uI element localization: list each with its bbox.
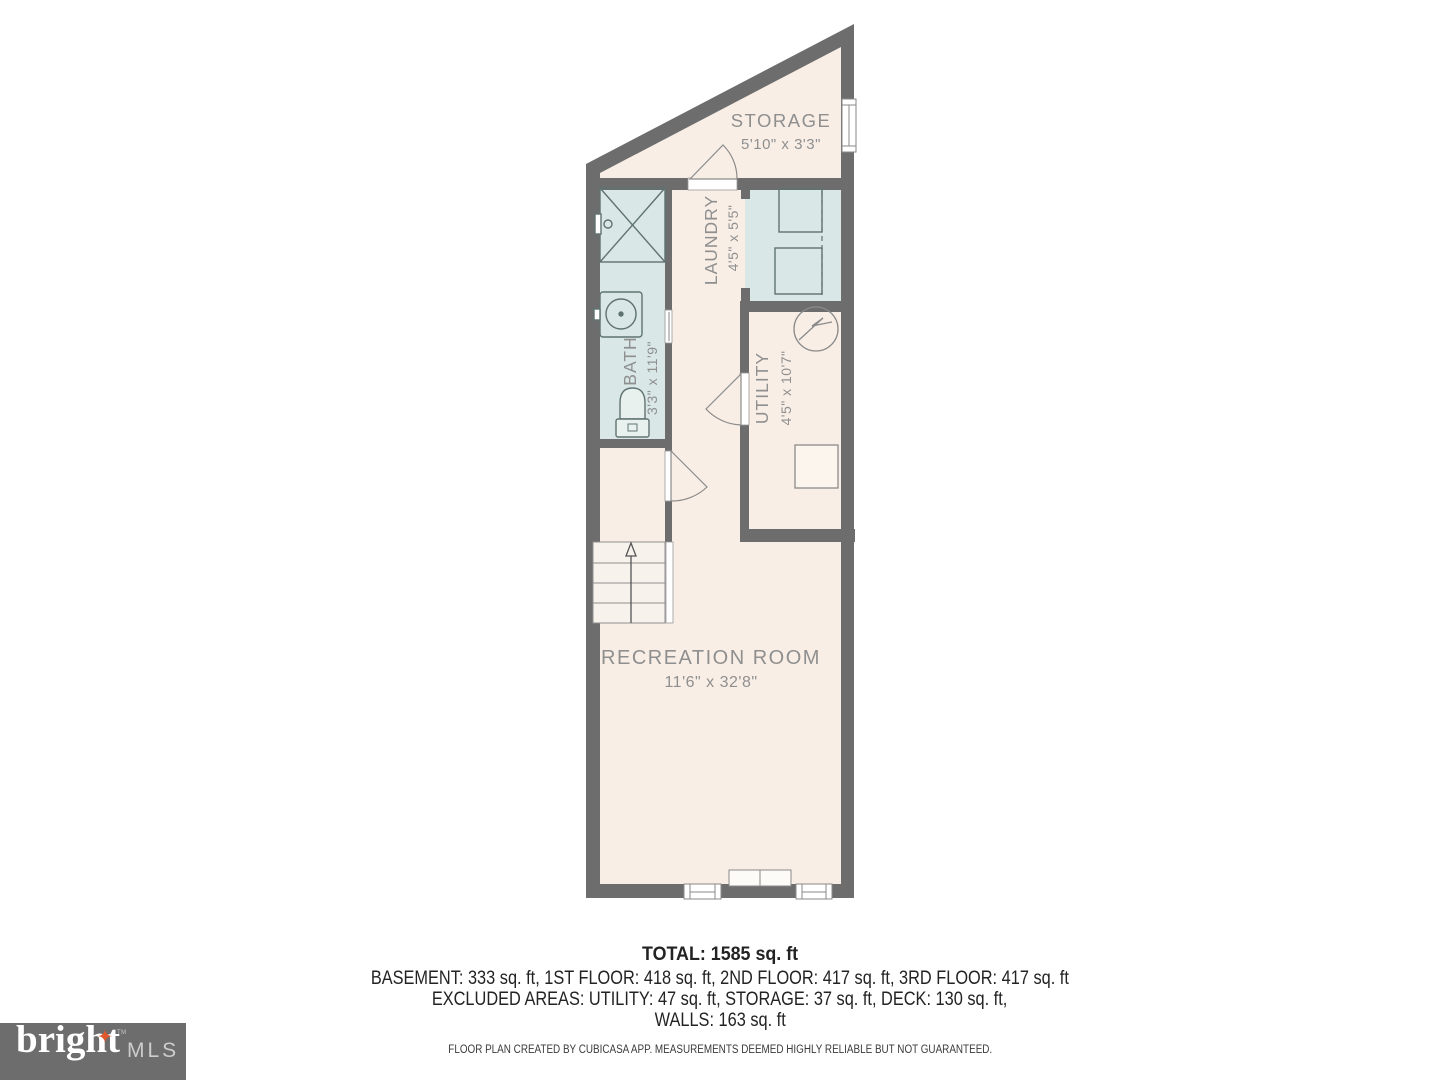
- utility-dimensions: 4'5" x 10'7": [778, 351, 794, 426]
- bath-label: BATH: [620, 336, 640, 385]
- floor-plan-page: STORAGE 5'10" x 3'3" LAUNDRY 4'5" x 5'5"…: [0, 0, 1440, 1080]
- recreation-room-dimensions: 11'6" x 32'8": [664, 674, 757, 691]
- floor-areas: BASEMENT: 333 sq. ft, 1ST FLOOR: 418 sq.…: [0, 968, 1440, 990]
- utility-label: UTILITY: [752, 352, 772, 424]
- recreation-window-left: [684, 884, 721, 899]
- staircase-icon: [593, 542, 673, 623]
- recreation-window-right: [796, 884, 832, 899]
- walls-area-text: WALLS: 163 sq. ft: [654, 1010, 785, 1032]
- hvac-unit-icon: [795, 445, 838, 488]
- bath-pocket-door: [665, 310, 672, 343]
- storage-window: [842, 99, 856, 152]
- logo-star-icon: ✦: [97, 1028, 113, 1047]
- floor-plan-drawing: STORAGE 5'10" x 3'3" LAUNDRY 4'5" x 5'5"…: [0, 0, 1440, 1080]
- logo-suffix-text: MLS: [127, 1039, 179, 1063]
- disclaimer-text: FLOOR PLAN CREATED BY CUBICASA APP. MEAS…: [448, 1044, 992, 1056]
- logo-trademark: TM: [117, 1030, 127, 1036]
- bath-dimensions: 3'3" x 11'9": [644, 341, 660, 415]
- laundry-closet-floor: [745, 190, 841, 301]
- total-area-text: TOTAL: 1585 sq. ft: [642, 944, 798, 966]
- console-furniture: [729, 870, 791, 886]
- excluded-areas: EXCLUDED AREAS: UTILITY: 47 sq. ft, STOR…: [0, 989, 1440, 1011]
- storage-dimensions: 5'10" x 3'3": [741, 136, 821, 153]
- laundry-label: LAUNDRY: [701, 195, 721, 285]
- storage-label: STORAGE: [731, 110, 832, 131]
- recreation-room-label: RECREATION ROOM: [601, 647, 821, 669]
- total-area: TOTAL: 1585 sq. ft: [0, 944, 1440, 966]
- brightmls-logo: bright ✦ TM MLS: [0, 1023, 186, 1080]
- laundry-dimensions: 4'5" x 5'5": [725, 205, 741, 272]
- disclaimer: FLOOR PLAN CREATED BY CUBICASA APP. MEAS…: [0, 1044, 1440, 1056]
- excluded-areas-text: EXCLUDED AREAS: UTILITY: 47 sq. ft, STOR…: [432, 989, 1007, 1011]
- floor-areas-text: BASEMENT: 333 sq. ft, 1ST FLOOR: 418 sq.…: [371, 968, 1069, 990]
- walls-area: WALLS: 163 sq. ft: [0, 1010, 1440, 1032]
